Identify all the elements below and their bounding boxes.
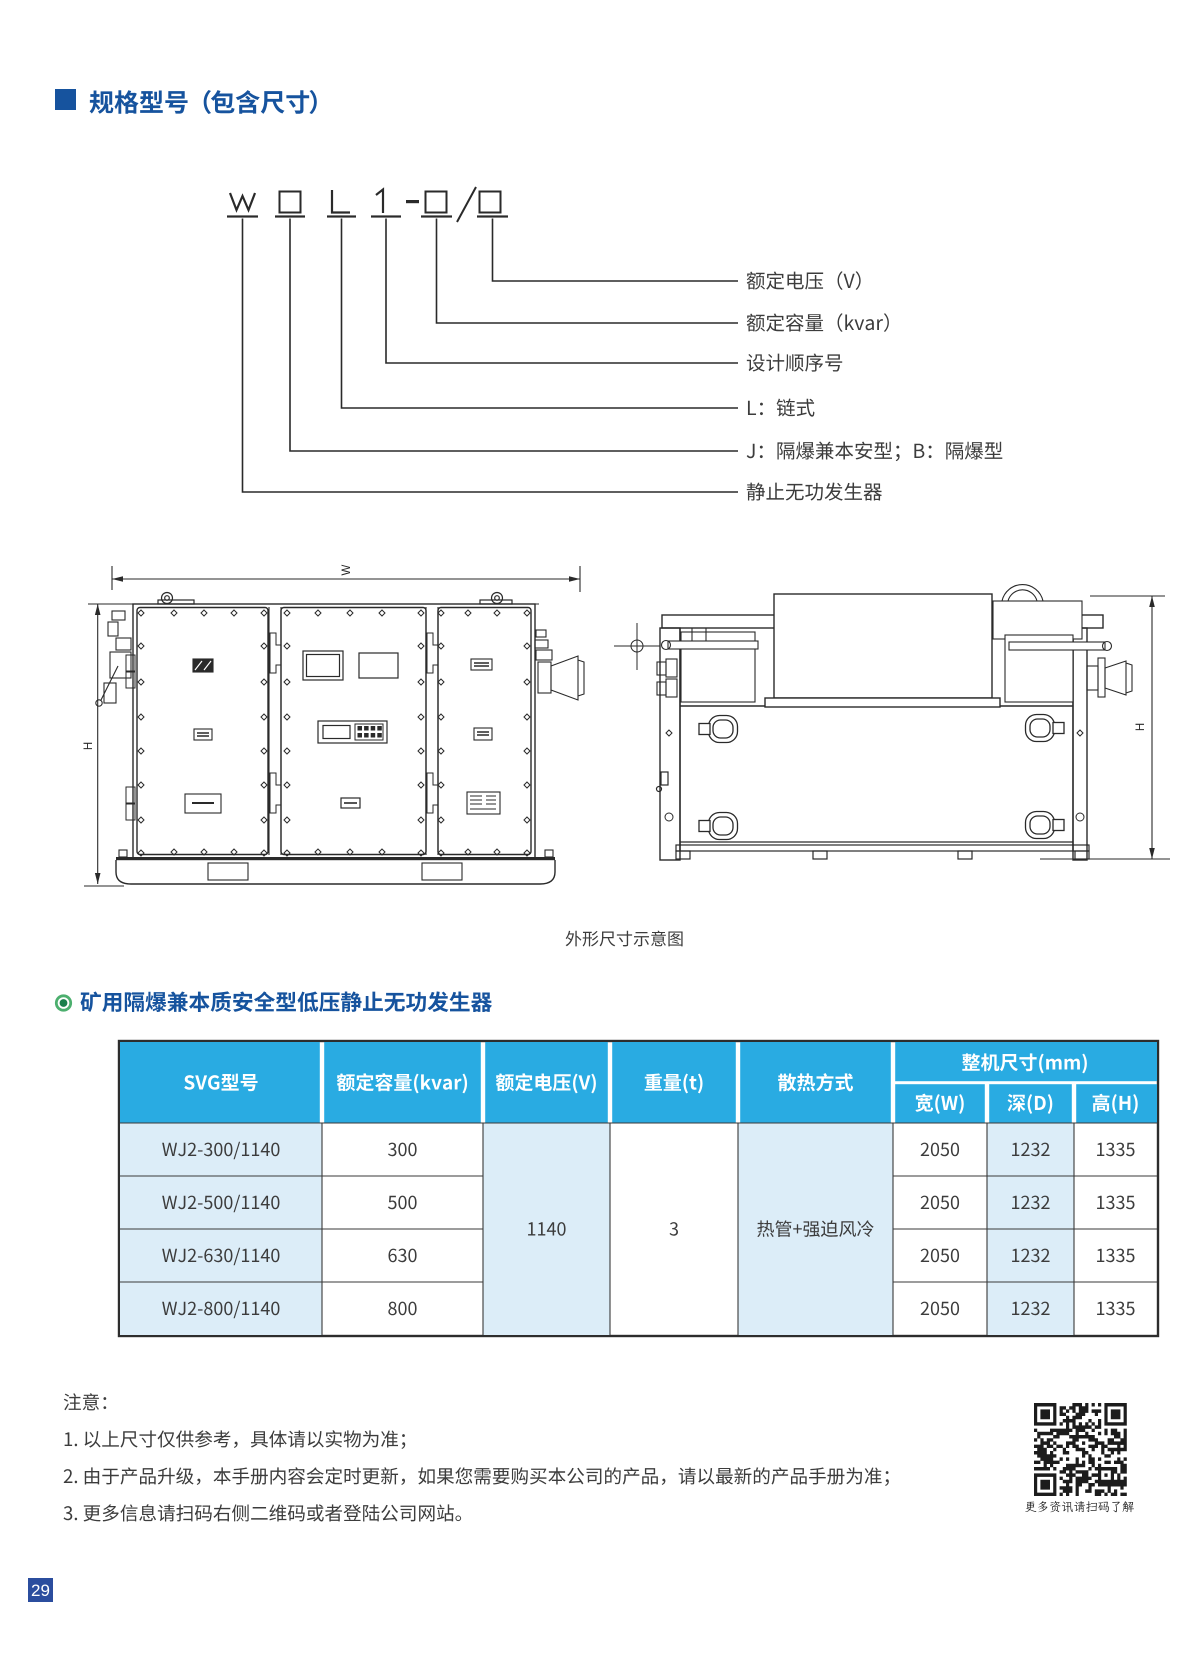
svg-text:H: H [83, 742, 95, 750]
svg-text:H: H [1135, 723, 1147, 731]
svg-text:W: W [341, 564, 353, 575]
svg-text:29: 29 [31, 1581, 50, 1600]
